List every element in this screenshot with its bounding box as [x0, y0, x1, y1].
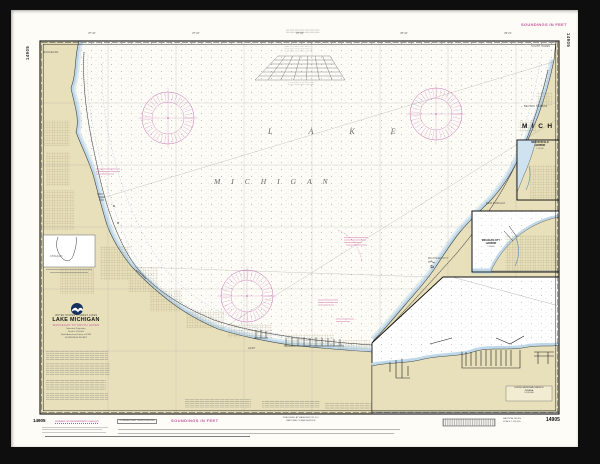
longitude-tick-1: 87°40' — [82, 33, 102, 36]
fan-subcaption-text — [288, 82, 314, 86]
inset-south-shore-label-line3: 1:120,000 — [507, 392, 551, 395]
bottom-soundings-note: SOUNDINGS IN FEET — [171, 419, 218, 423]
chart-number-bottom-right: 14905 — [546, 418, 560, 423]
chart-number-right-edge: 14905 — [566, 33, 570, 47]
inset-title-michigan-city: MICHIGAN CITY HARBOR 1:15,000 — [474, 240, 508, 248]
title-block: UNITED STATES — GREAT LAKES LAKE MICHIGA… — [42, 315, 110, 340]
inset-new-buffalo-scale: 1:15,000 — [524, 148, 556, 151]
inset-michigan-city-scale: 1:15,000 — [474, 246, 508, 249]
bottom-boxed-note: CORRECTED THROUGH NM — [117, 419, 157, 425]
chart-number-left-edge: 14905 — [26, 46, 30, 60]
bottom-margin-graphics — [42, 419, 495, 437]
longitude-tick-5: 86°20' — [498, 33, 518, 36]
shore-label-benton-harbor: BENTON HARBOR — [524, 106, 547, 109]
longitude-tick-2: 87°20' — [186, 33, 206, 36]
title-detail-soundings: SOUNDINGS IN FEET — [42, 337, 110, 340]
bottom-scale-note-line2: SCALE 1:120,000 — [503, 421, 535, 424]
top-soundings-note: SOUNDINGS IN FEET — [521, 23, 563, 27]
longitude-tick-3: 87°00' — [290, 33, 310, 36]
inset-south-shore-label: BURNS WATERWAY HARBOR INDIANA 1:120,000 — [507, 387, 551, 395]
shore-label-michigan-city: MICHIGAN CITY — [428, 258, 449, 261]
bottom-imprint-line2: NATIONAL OCEAN SERVICE — [281, 420, 321, 423]
bottom-scale-note: NAUTICAL MILES SCALE 1:120,000 — [503, 418, 535, 424]
shore-label-gary: GARY — [248, 348, 256, 351]
chart-number-bottom-left: 14905 — [33, 419, 46, 424]
shore-label-chicago: CHICAGO — [50, 256, 63, 259]
noaa-logo — [71, 303, 83, 315]
bottom-fine-print-line-2 — [118, 433, 394, 434]
bottom-fine-print-line-1 — [118, 429, 400, 430]
fan-caption-text — [284, 46, 312, 52]
longitude-tick-4: 86°40' — [394, 33, 414, 36]
state-label-michigan: MICH — [522, 124, 557, 131]
shore-label-south-haven: SOUTH HAVEN — [531, 46, 550, 49]
bottom-magenta-note: Updates at nauticalcharts.noaa.gov — [55, 420, 99, 423]
shore-label-new-buffalo: NEW BUFFALO — [486, 203, 505, 206]
bottom-imprint: PUBLISHED AT WASHINGTON, D.C. NATIONAL O… — [281, 417, 321, 423]
lake-locator-map — [43, 235, 95, 273]
inset-title-new-buffalo: NEW BUFFALO HARBOR 1:15,000 — [524, 142, 556, 150]
framed-chart-photo: LAKE MICHIGAN MICH WAUKEGAN CHICAGO GARY… — [0, 0, 600, 464]
lake-name-word-2: MICHIGAN — [214, 178, 339, 186]
shore-label-waukegan: WAUKEGAN — [43, 52, 58, 55]
lake-name-word-1: LAKE — [268, 128, 432, 136]
